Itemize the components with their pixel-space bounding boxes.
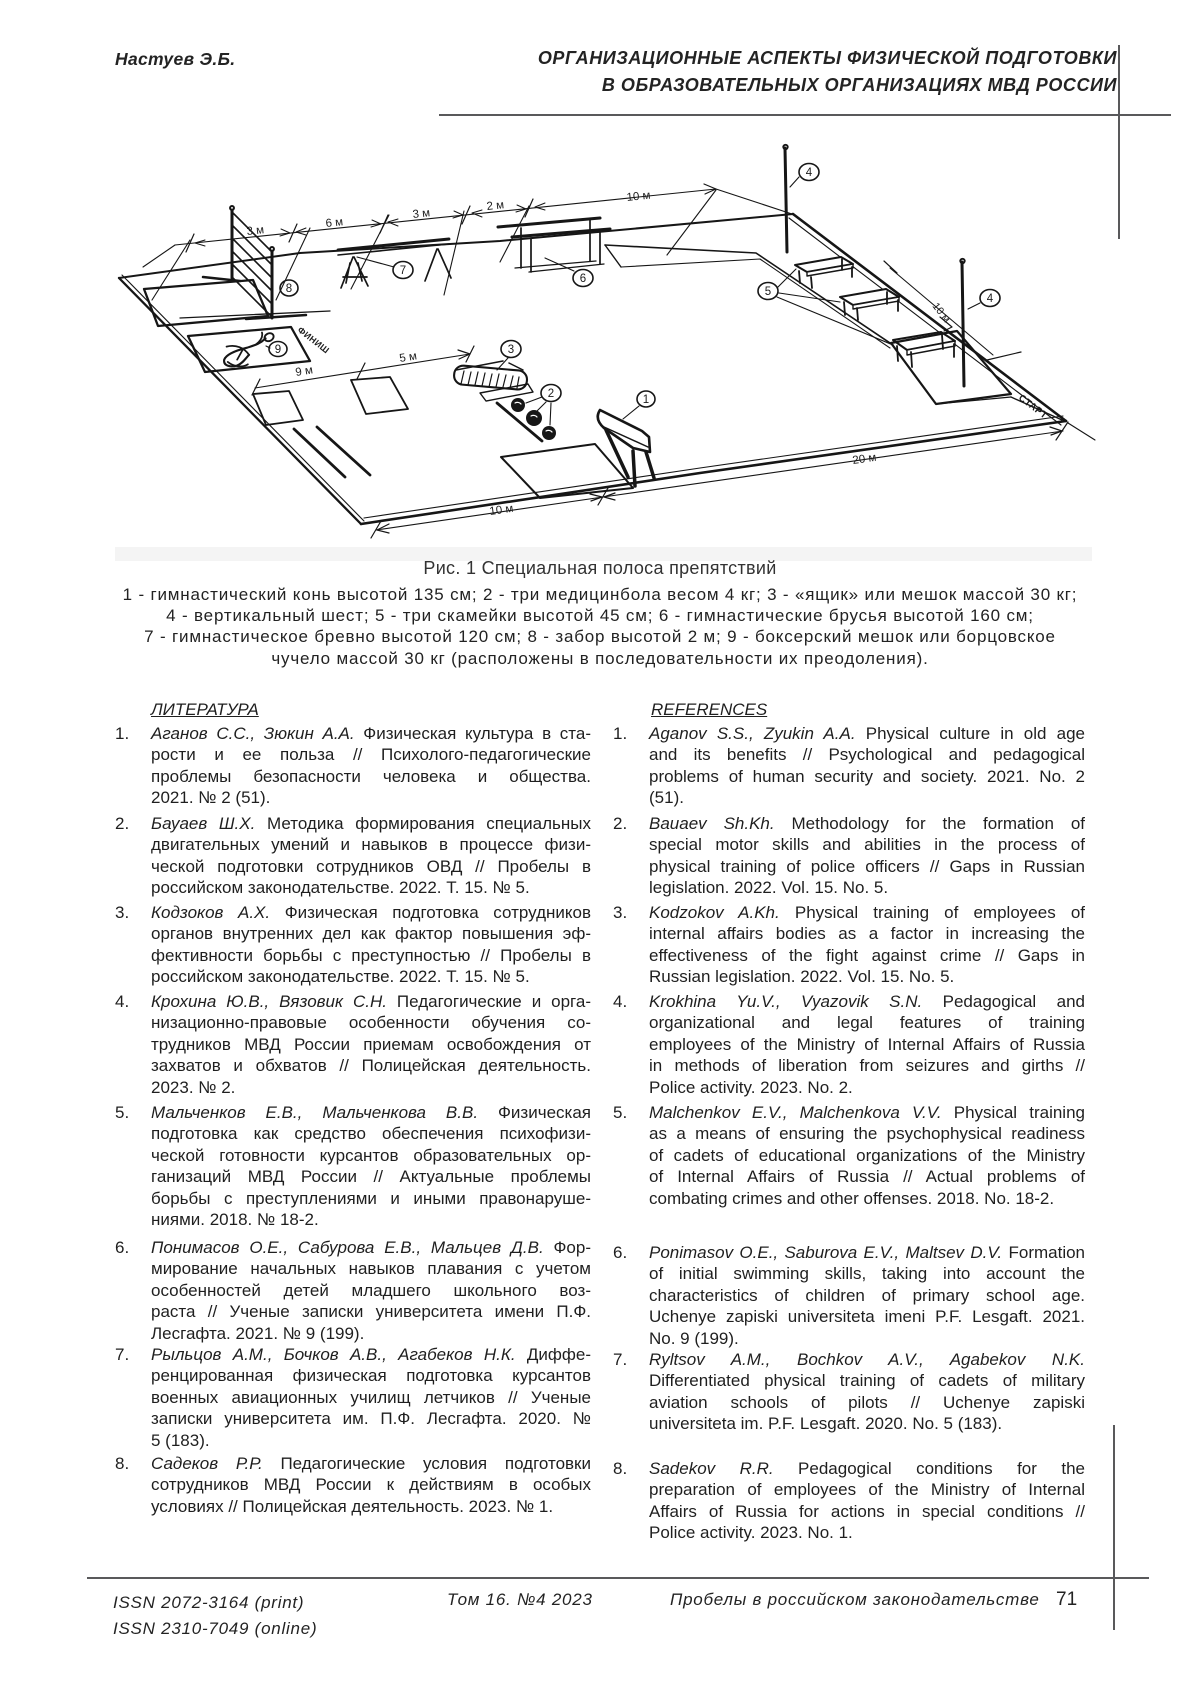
svg-text:3 м: 3 м xyxy=(412,207,431,221)
svg-text:8: 8 xyxy=(286,283,292,295)
svg-text:20 м: 20 м xyxy=(852,452,877,467)
svg-text:ФИНИШ: ФИНИШ xyxy=(296,325,332,356)
svg-text:7: 7 xyxy=(400,265,406,277)
svg-text:2: 2 xyxy=(548,388,554,400)
svg-text:5: 5 xyxy=(765,286,771,298)
svg-text:1: 1 xyxy=(643,394,649,406)
svg-text:10 м: 10 м xyxy=(626,190,651,204)
svg-text:2 м: 2 м xyxy=(486,199,505,213)
svg-text:9: 9 xyxy=(275,344,281,356)
svg-text:4: 4 xyxy=(806,167,813,179)
svg-text:4: 4 xyxy=(987,293,994,305)
svg-text:3 м: 3 м xyxy=(246,224,265,238)
svg-text:10 м: 10 м xyxy=(489,503,514,518)
svg-text:3: 3 xyxy=(508,344,514,356)
svg-text:6: 6 xyxy=(580,273,586,285)
svg-text:9 м: 9 м xyxy=(295,364,314,379)
svg-text:6 м: 6 м xyxy=(325,216,344,230)
